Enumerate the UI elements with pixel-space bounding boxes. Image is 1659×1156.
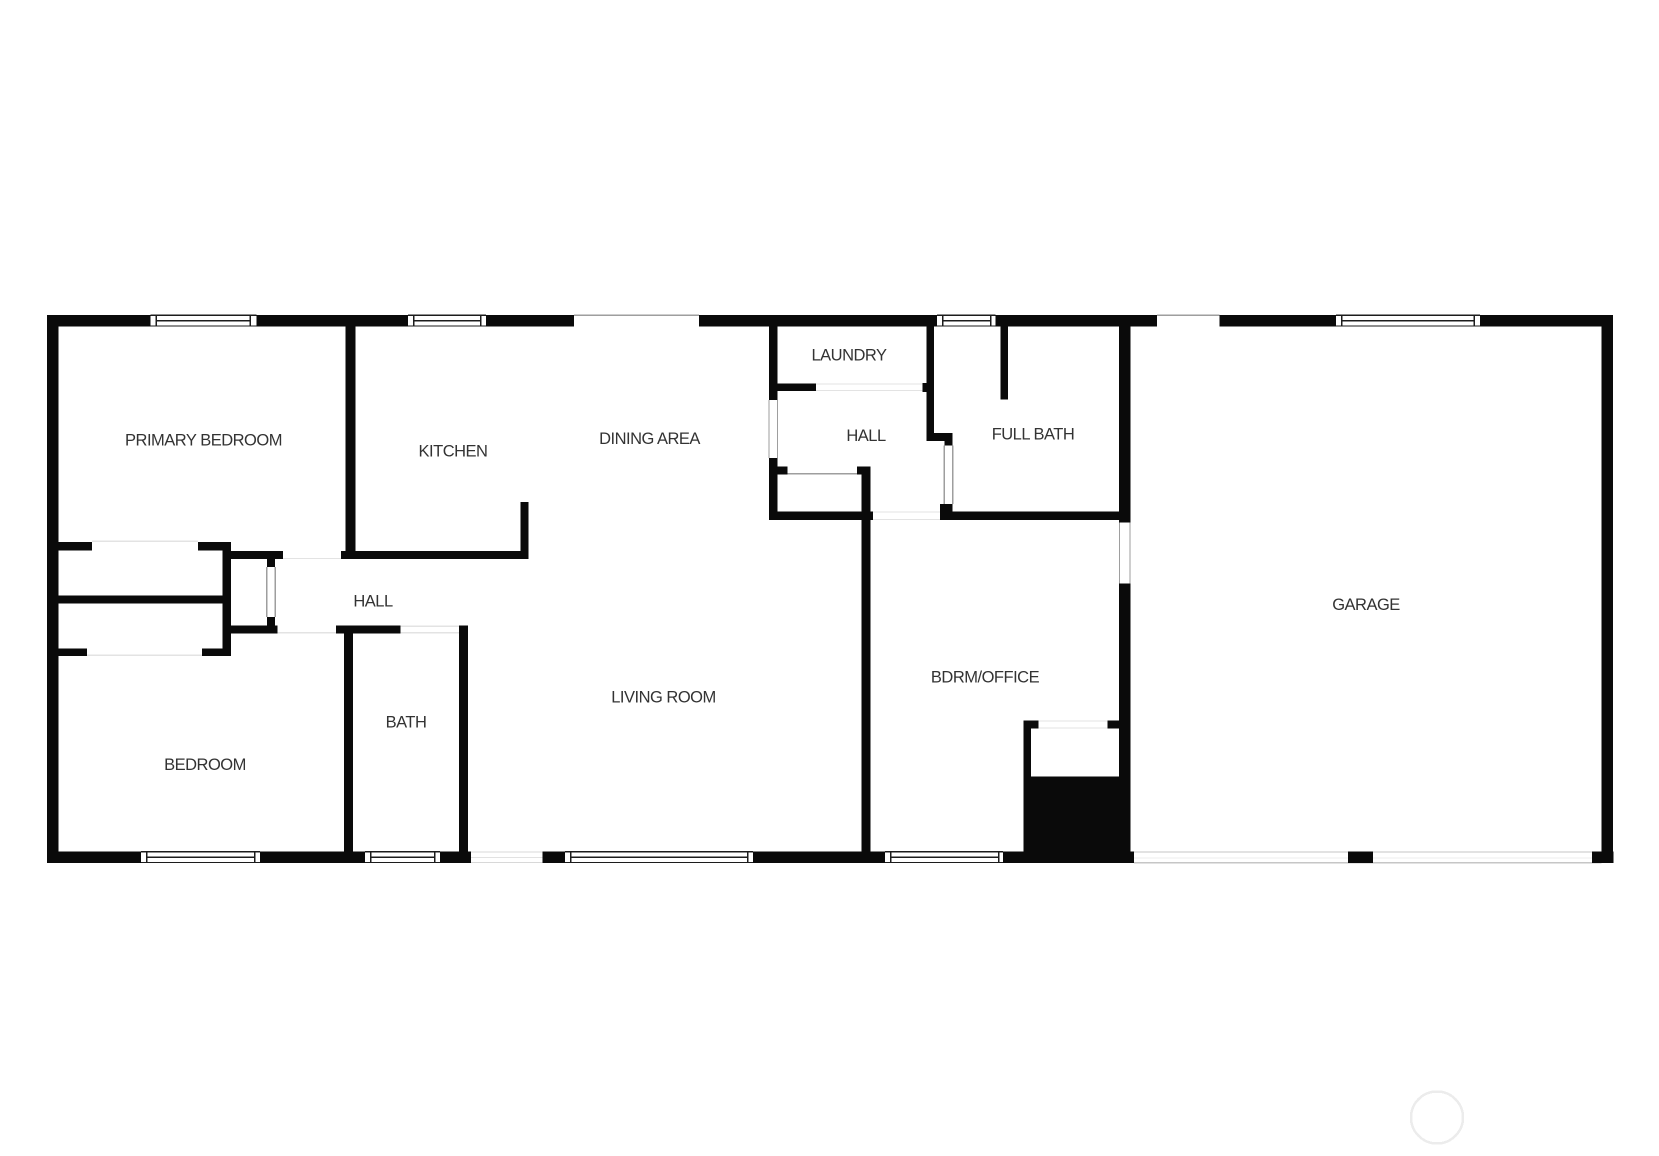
svg-text:BATH: BATH	[386, 714, 427, 732]
svg-text:LIVING ROOM: LIVING ROOM	[611, 689, 716, 707]
svg-text:BDRM/OFFICE: BDRM/OFFICE	[931, 669, 1040, 687]
svg-text:DINING AREA: DINING AREA	[599, 430, 700, 448]
svg-text:KITCHEN: KITCHEN	[419, 443, 488, 461]
svg-text:BEDROOM: BEDROOM	[164, 756, 246, 774]
svg-text:LAUNDRY: LAUNDRY	[811, 347, 887, 365]
svg-text:HALL: HALL	[846, 427, 886, 445]
svg-text:GARAGE: GARAGE	[1332, 596, 1400, 614]
svg-text:HALL: HALL	[353, 593, 393, 611]
svg-text:FULL BATH: FULL BATH	[992, 426, 1075, 444]
svg-text:PRIMARY BEDROOM: PRIMARY BEDROOM	[125, 432, 282, 450]
